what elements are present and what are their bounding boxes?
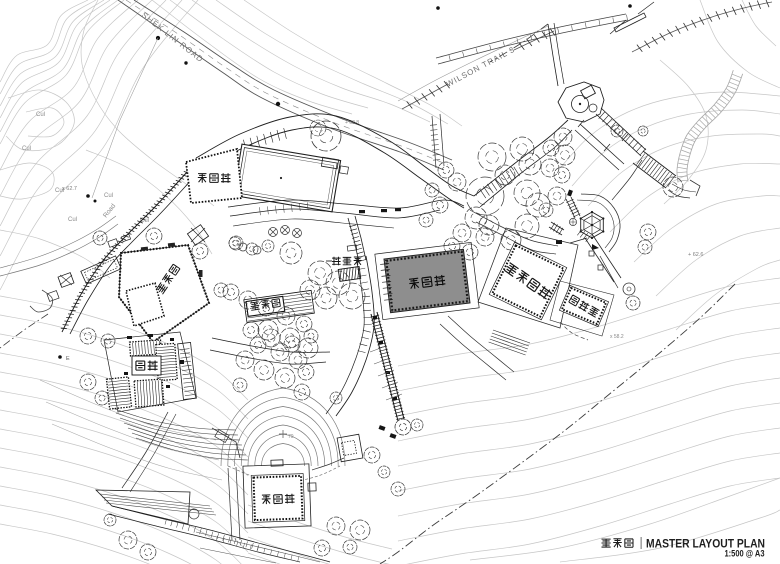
svg-text:Cul: Cul <box>36 112 45 118</box>
svg-text:Cul: Cul <box>104 193 113 199</box>
svg-text:E: E <box>66 356 70 362</box>
svg-text:Cul: Cul <box>68 217 77 223</box>
svg-text:x 62.7: x 62.7 <box>62 186 77 192</box>
svg-text:x 58.2: x 58.2 <box>610 334 624 340</box>
svg-text:+ 62.6: + 62.6 <box>688 252 703 258</box>
svg-text:1:500 @ A3: 1:500 @ A3 <box>725 549 765 559</box>
svg-text:Cul: Cul <box>22 146 31 152</box>
svg-text:+ 62.8: + 62.8 <box>345 120 359 126</box>
svg-text:79: 79 <box>288 434 294 440</box>
